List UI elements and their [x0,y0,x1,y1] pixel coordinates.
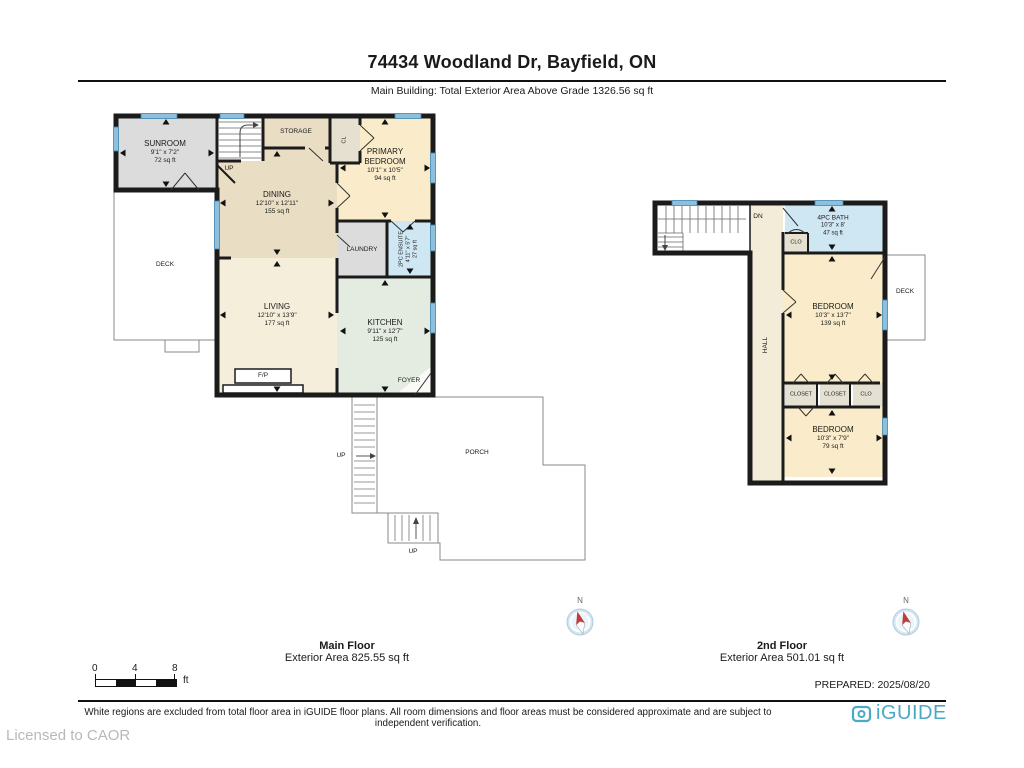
scale-tick-0: 0 [92,663,98,674]
second-deck-outline [885,255,925,340]
scale-tick-4: 4 [132,663,138,674]
room-label-cl: CL [342,136,349,143]
room-label-ensuite: 2PC ENSUITE 4'11" x 5'7" 27 sq ft [399,231,420,267]
room-label-sunroom: SUNROOM 9'1" x 7'2" 72 sq ft [144,139,186,165]
room-label-primary-bedroom: PRIMARY BEDROOM 10'1" x 10'5" 94 sq ft [356,147,414,183]
stairs-up-label-interior: UP [224,165,233,173]
room-label-clo: CLO [860,392,871,399]
compass-icon [560,605,600,641]
main-floor-drawing [113,113,593,565]
main-floor-caption: Main Floor Exterior Area 825.55 sq ft [247,640,447,664]
page-title: 74434 Woodland Dr, Bayfield, ON [0,52,1024,73]
prepared-date: PREPARED: 2025/08/20 [815,679,930,691]
room-label-hall: HALL [762,337,770,353]
disclaimer-text: White regions are excluded from total fl… [78,707,778,729]
room-label-bedroom-small: BEDROOM 10'3" x 7'9" 79 sq ft [812,425,853,451]
stairs-dn-label: DN [753,213,762,221]
compass-icon [886,605,926,641]
scale-bar-segments [95,679,177,687]
scale-bar: 0 4 8 ft [95,663,215,691]
room-label-bedroom-large: BEDROOM 10'3" x 13'7" 139 sq ft [812,302,853,328]
compass-second-floor: N [886,596,926,646]
room-label-closet1: CLOSET [790,392,812,399]
scale-unit-label: ft [183,675,189,686]
compass-main-floor: N [560,596,600,646]
header-divider [78,80,946,82]
room-label-storage: STORAGE [280,128,312,136]
iguide-logo: iGUIDE [851,702,947,725]
floor-plan-page: 74434 Woodland Dr, Bayfield, ON Main Bui… [0,0,1024,768]
scale-tick-8: 8 [172,663,178,674]
room-label-kitchen: KITCHEN 9'11" x 12'7" 125 sq ft [367,318,402,344]
room-label-foyer: FOYER [398,377,420,385]
main-floor-plan: SUNROOM 9'1" x 7'2" 72 sq ft STORAGE CL … [113,113,593,565]
page-subtitle: Main Building: Total Exterior Area Above… [0,85,1024,97]
second-floor-plan: DN 4PC BATH 10'3" x 8' 47 sq ft CLO HALL… [650,195,930,495]
room-label-dining: DINING 12'10" x 12'11" 155 sq ft [256,190,298,216]
stairs-up-label-porch1: UP [336,452,345,460]
stairs-up-label-porch2: UP [408,548,417,556]
room-label-closet2: CLOSET [824,392,846,399]
main-deck-outline [114,192,217,352]
second-floor-caption: 2nd Floor Exterior Area 501.01 sq ft [682,640,882,664]
deck-label-second: DECK [896,288,914,296]
porch-label: PORCH [465,449,488,457]
compass-north-label: N [886,596,926,605]
room-label-laundry: LAUNDRY [347,246,378,254]
footer-divider [78,700,946,702]
main-porch-outline [352,397,585,560]
room-label-bath: 4PC BATH 10'3" x 8' 47 sq ft [817,214,848,237]
room-label-living: LIVING 12'10" x 13'9" 177 sq ft [257,302,296,328]
room-label-clo-bath: CLO [790,240,801,247]
compass-north-label: N [560,596,600,605]
iguide-logo-text: iGUIDE [876,702,947,725]
iguide-logo-icon [851,704,872,723]
deck-label-main: DECK [156,261,174,269]
fireplace-label: F/P [258,372,268,380]
licensed-text: Licensed to CAOR [6,727,130,744]
